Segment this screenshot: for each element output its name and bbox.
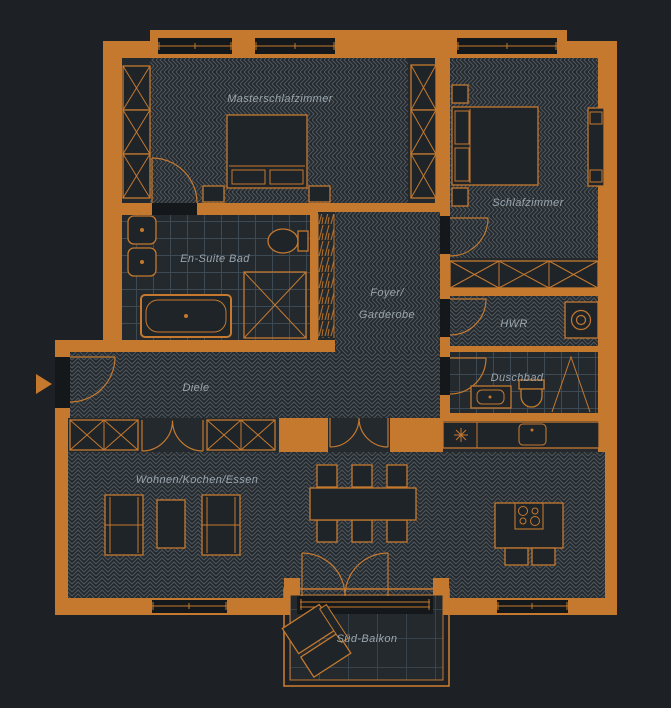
chair-icon [352, 465, 372, 487]
label-foyer-line2: Garderobe [359, 309, 415, 321]
label-diele: Diele [182, 382, 209, 394]
wardrobe-master-right [411, 65, 436, 198]
cooktop-star-icon [454, 428, 468, 442]
window-bottom-1 [152, 600, 227, 613]
chair-icon [387, 520, 407, 542]
dining-set [310, 465, 416, 542]
toilet-icon [519, 380, 544, 407]
label-foyer-line1: Foyer/ [370, 287, 404, 299]
toilet-icon [268, 229, 298, 253]
window-top-1 [158, 38, 232, 54]
window-top-3 [457, 38, 557, 54]
chair-icon [317, 465, 337, 487]
pillow-icon [270, 170, 303, 184]
garderobe-rail [318, 214, 334, 338]
label-hwr: HWR [500, 318, 527, 330]
label-sued-balkon: Süd-Balkon [337, 633, 398, 645]
top-left-notch [103, 30, 150, 41]
nightstand-icon [452, 85, 468, 103]
pillow-icon [455, 111, 469, 144]
top-right-notch [567, 30, 617, 41]
coffee-table-icon [157, 500, 185, 548]
label-duschbad: Duschbad [491, 372, 544, 384]
bar-stool-icon [505, 548, 528, 565]
pillow-icon [455, 148, 469, 181]
nightstand-icon [452, 188, 468, 206]
fixtures-hwr [565, 302, 598, 338]
nightstand-icon [309, 186, 330, 202]
label-ensuite-bad: En-Suite Bad [180, 253, 250, 265]
chair-icon [352, 520, 372, 542]
window-bottom-2 [497, 600, 568, 613]
nightstand-icon [203, 186, 224, 202]
label-masterschlafzimmer: Masterschlafzimmer [227, 93, 334, 105]
dining-table-icon [310, 488, 416, 520]
label-schlafzimmer: Schlafzimmer [492, 197, 564, 209]
bar-stool-icon [532, 548, 555, 565]
pillow-icon [232, 170, 265, 184]
sofa-icon [105, 495, 143, 555]
chair-icon [317, 520, 337, 542]
sofa-icon [202, 495, 240, 555]
chair-icon [387, 465, 407, 487]
wardrobe-master-left [123, 66, 150, 198]
label-wohnen: Wohnen/Kochen/Essen [136, 474, 259, 486]
wardrobe-diele-2 [207, 420, 275, 450]
wardrobe-diele-1 [70, 420, 138, 450]
floor-plan-svg: Masterschlafzimmer Schlafzimmer En-Suite… [0, 0, 671, 708]
washing-machine-icon [565, 302, 598, 338]
entrance-arrow-icon [36, 374, 52, 394]
floor-plan: Masterschlafzimmer Schlafzimmer En-Suite… [0, 0, 671, 708]
wardrobe-schlafzimmer [450, 261, 598, 288]
window-top-2 [255, 38, 335, 54]
